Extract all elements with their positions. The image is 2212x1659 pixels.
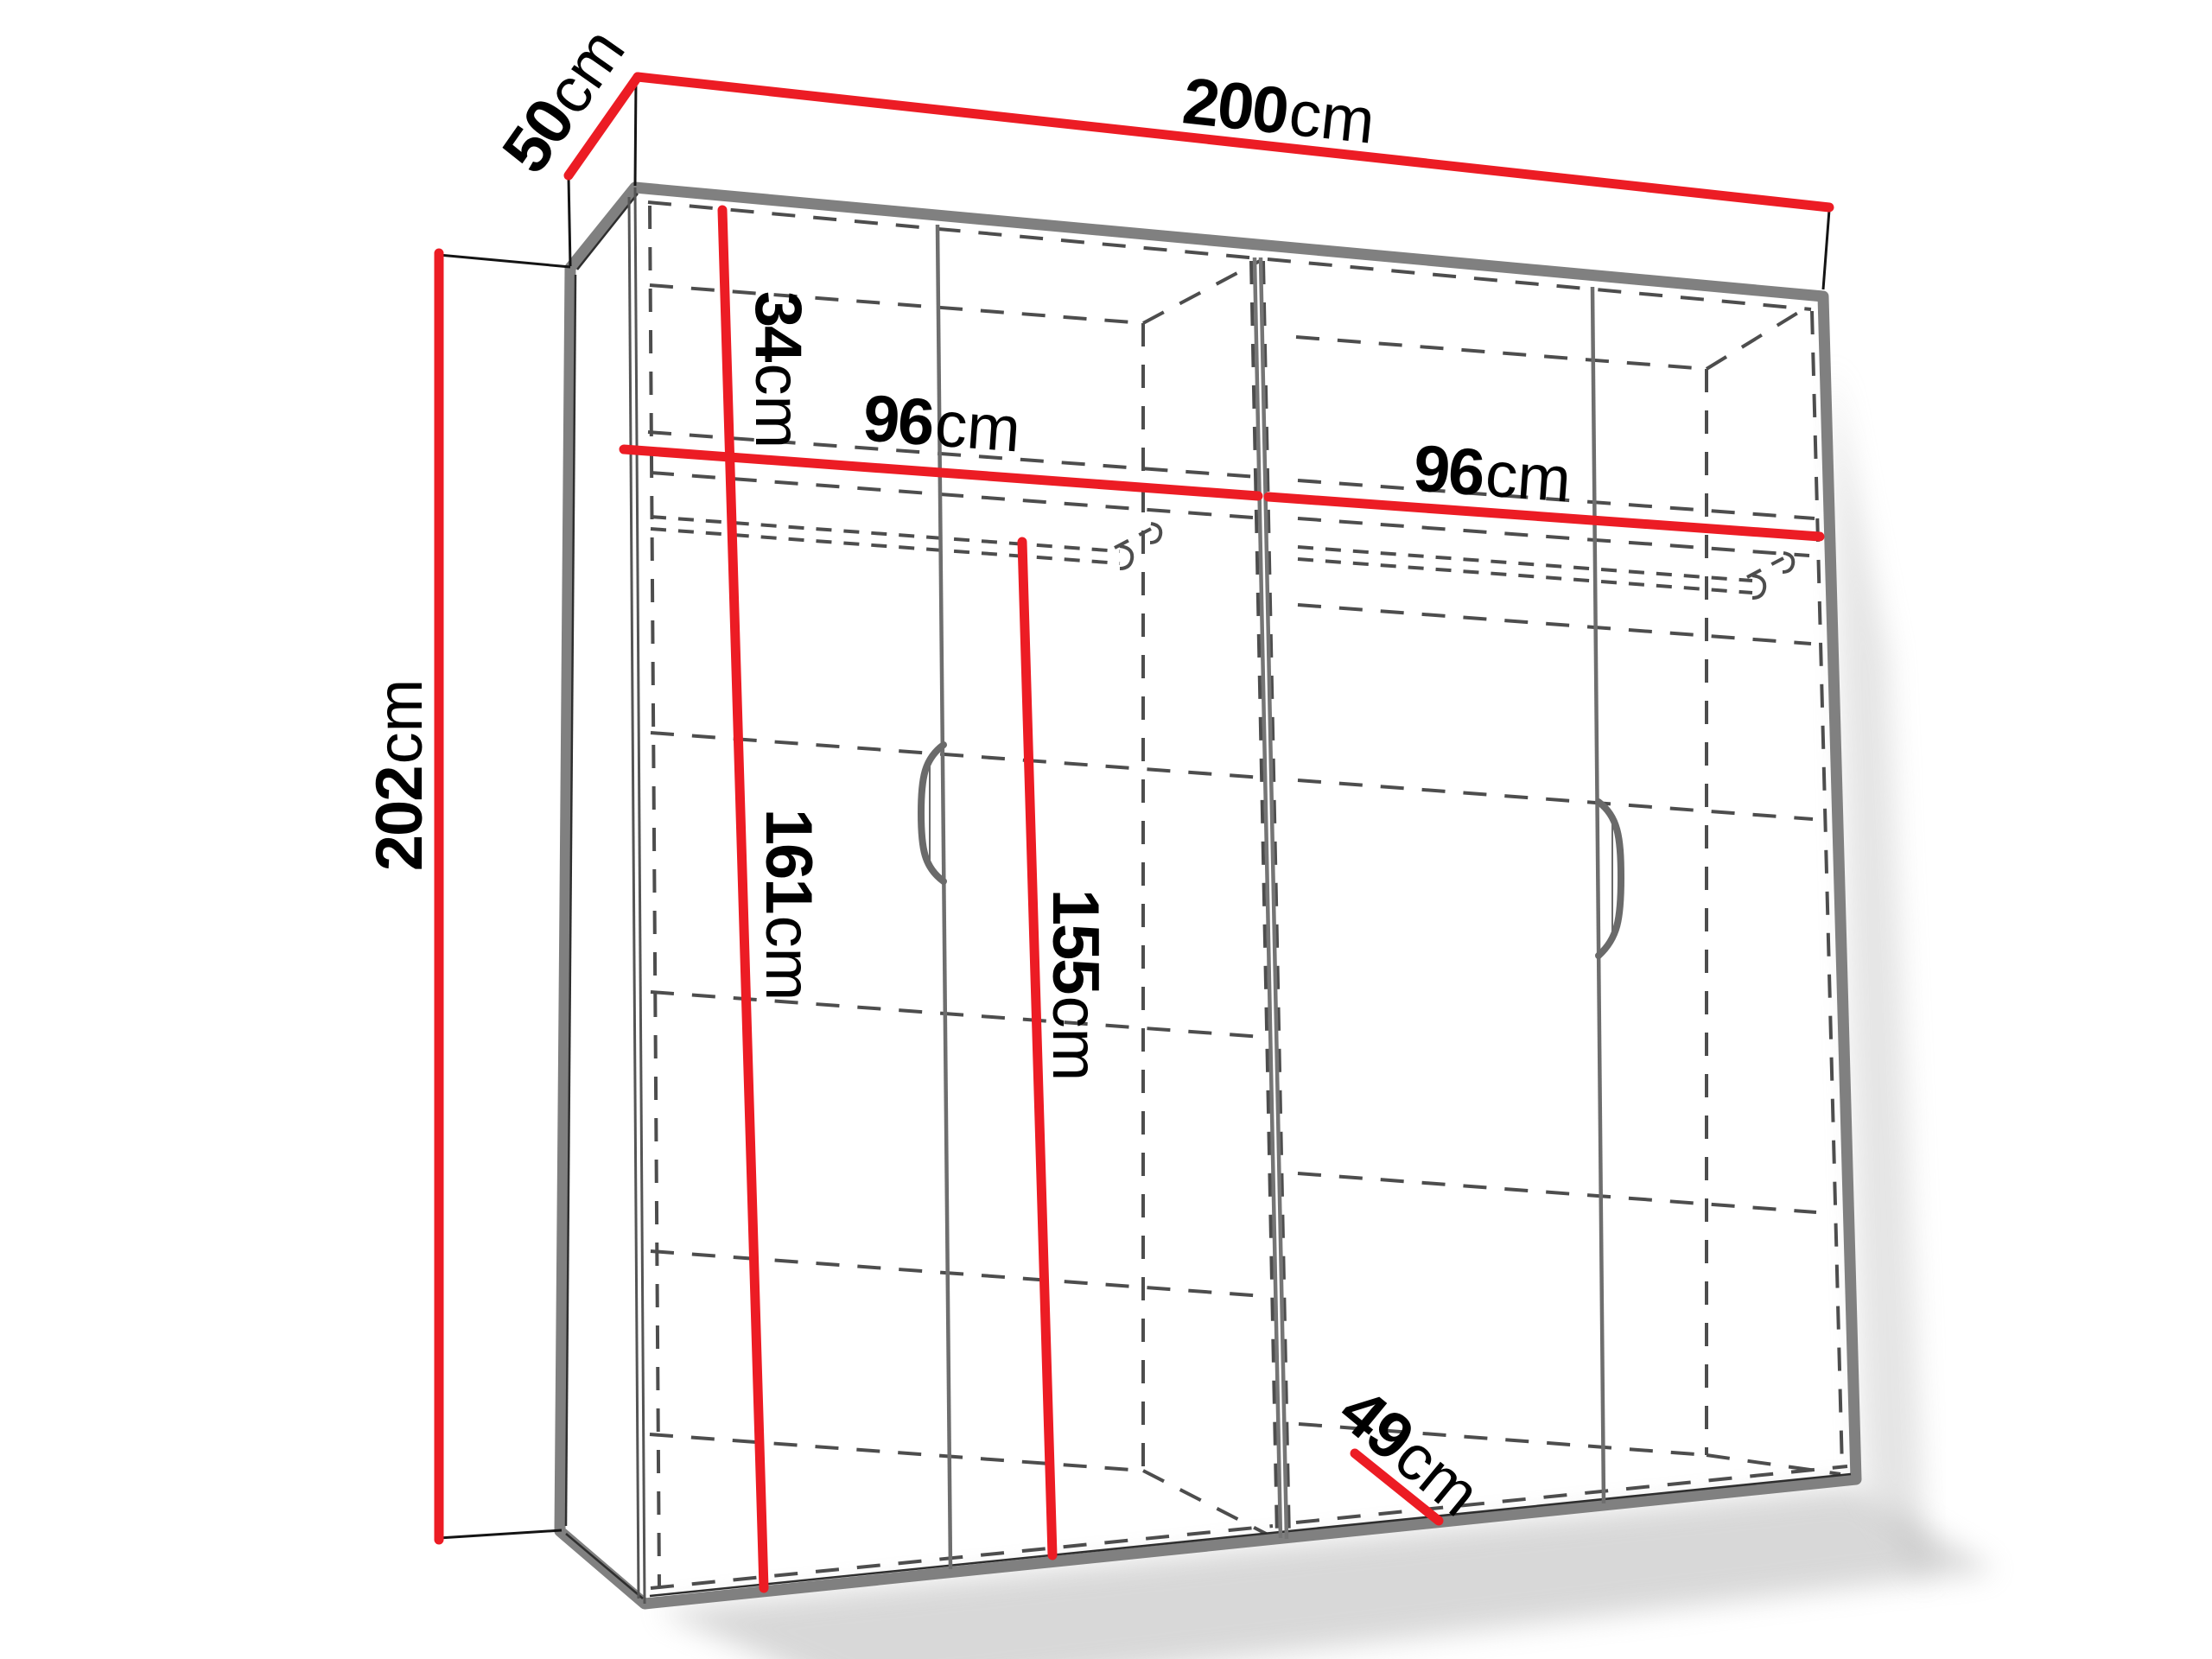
diagram-canvas: 200cm 50cm 202cm 34cm 96cm 96cm 161cm 15… xyxy=(0,0,2212,1659)
height-label: 202cm xyxy=(363,679,436,871)
left-interior-height-label: 161cm xyxy=(753,809,826,1001)
rail-height-text: 155cm xyxy=(1039,889,1113,1081)
depth-extension xyxy=(569,177,570,266)
ceiling-front-dashed xyxy=(648,202,1811,309)
interior-dashed-lines xyxy=(648,202,1847,1588)
height-unit: cm xyxy=(364,679,435,765)
left-compartment-width-unit: cm xyxy=(932,387,1022,465)
extension-lines xyxy=(439,79,1829,1538)
left-interior-height-value: 161 xyxy=(753,809,826,914)
left-rail-hook xyxy=(1120,546,1132,569)
left-compartment-width-text: 96cm xyxy=(861,381,1023,466)
left-door-handle xyxy=(921,745,944,881)
height-value: 202 xyxy=(363,766,436,871)
left-compartment-width-value: 96 xyxy=(861,381,936,460)
right-shelf-position-2 xyxy=(1298,780,1813,819)
width-extension-left xyxy=(635,79,636,186)
left-shelf-position-3 xyxy=(651,1251,1263,1296)
left-front-inner-vertical xyxy=(650,206,659,1588)
right-rail-hook xyxy=(1752,575,1764,598)
left-shelf-bottom-dashed xyxy=(651,473,1253,518)
height-extension-bottom xyxy=(439,1530,562,1538)
right-compartment-width-unit: cm xyxy=(1483,437,1573,515)
left-top-depth-diagonal xyxy=(1143,261,1260,323)
width-value: 200 xyxy=(1179,64,1291,149)
top-shelf-label: 34cm xyxy=(742,291,816,448)
right-door-gap xyxy=(1592,287,1604,1503)
right-ceiling-back-dashed xyxy=(1296,337,1707,369)
top-shelf-value: 34 xyxy=(742,291,816,362)
right-compartment-width-value: 96 xyxy=(1411,431,1486,510)
top-shelf-unit: cm xyxy=(743,363,815,448)
right-shelf-position-3 xyxy=(1298,1173,1816,1212)
wardrobe-dimension-diagram: 200cm 50cm 202cm 34cm 96cm 96cm 161cm 15… xyxy=(0,0,2212,1659)
left-rail-hook-back xyxy=(1150,524,1160,543)
cast-shadow xyxy=(657,363,1996,1659)
top-shelf-label-text: 34cm xyxy=(742,291,816,448)
rail-height-value: 155 xyxy=(1039,889,1113,995)
right-compartment-width-label: 96cm xyxy=(1411,431,1573,516)
right-shelf-bottom-dashed xyxy=(1298,518,1809,556)
right-shelf-position-1 xyxy=(1298,605,1811,644)
right-rail-hook-back xyxy=(1783,553,1793,572)
height-extension-top xyxy=(439,255,570,267)
right-door-handle xyxy=(1599,802,1621,956)
right-bottom-depth-diagonal xyxy=(1707,1455,1840,1474)
left-bottom-depth-diagonal xyxy=(1143,1471,1274,1538)
height-label-text: 202cm xyxy=(363,679,436,871)
bottom-left-inner-edge xyxy=(566,1534,643,1599)
right-compartment-width-text: 96cm xyxy=(1411,431,1573,516)
rail-height-unit: cm xyxy=(1040,996,1112,1082)
width-extension-right xyxy=(1823,210,1829,289)
left-floor-back-dashed xyxy=(650,1434,1143,1471)
right-top-depth-diagonal xyxy=(1707,304,1812,369)
dimension-labels: 200cm 50cm 202cm 34cm 96cm 96cm 161cm 15… xyxy=(363,15,1573,1530)
left-compartment-width-label: 96cm xyxy=(861,381,1023,466)
rail-height-label: 155cm xyxy=(1039,889,1113,1081)
floor-shadow-shape xyxy=(657,1486,1996,1659)
width-unit: cm xyxy=(1286,76,1378,156)
left-interior-height-unit: cm xyxy=(753,916,825,1001)
left-interior-height-text: 161cm xyxy=(753,809,826,1001)
